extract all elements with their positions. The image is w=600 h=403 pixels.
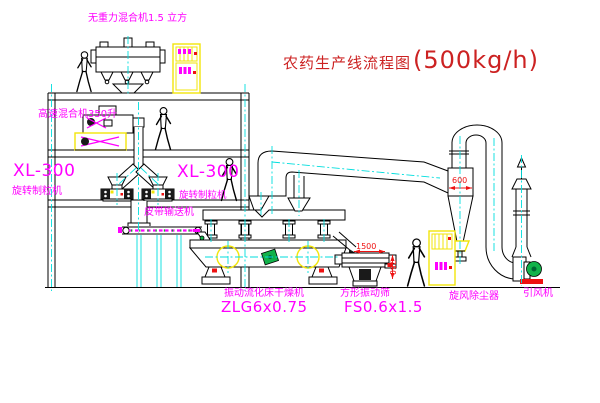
granulator-right-model: XL-300 <box>177 164 239 181</box>
sieve-model: FS0.6x1.5 <box>344 300 423 315</box>
high-speed-mixer-label: 高速混合机350升 <box>38 110 117 120</box>
belt-conveyor <box>118 226 202 235</box>
granulator-right-name: 旋转制粒机 <box>179 191 227 201</box>
gravity-mixer-label: 无重力混合机1.5 立方 <box>88 14 187 24</box>
belt-conveyor-label: 皮带输送机 <box>144 208 194 218</box>
vibrating-sieve <box>335 250 396 287</box>
fan-label: 引风机 <box>523 289 553 299</box>
dryer-model: ZLG6x0.75 <box>221 300 308 315</box>
pesticide-line-flow-diagram: 农药生产线流程图 (500kg/h) 无重力混合机1.5 立方 高速混合机350… <box>0 0 600 403</box>
person-roof <box>77 52 91 92</box>
cyclone-width-dimension: 600 <box>452 177 467 185</box>
exhaust-duct <box>249 151 448 211</box>
cyclone-label: 旋风除尘器 <box>449 292 499 302</box>
person-second-floor <box>156 108 171 150</box>
title-text: 农药生产线流程图 <box>283 52 411 73</box>
diagram-title: 农药生产线流程图 (500kg/h) <box>283 46 539 74</box>
granulator-left-name: 旋转制粒机 <box>12 187 62 197</box>
induced-draft-fan <box>513 257 543 284</box>
control-cabinet-top <box>173 44 200 93</box>
sieve-length-dimension: 1500 <box>356 243 376 251</box>
fan-suction-pipe <box>486 143 516 279</box>
fluid-bed-dryer <box>190 210 356 284</box>
granulator-left-model: XL-300 <box>13 163 75 180</box>
control-cabinet-right <box>429 231 455 285</box>
sieve-height-dimension: 750 <box>388 260 396 275</box>
title-capacity: (500kg/h) <box>413 46 539 74</box>
person-ground <box>408 239 425 286</box>
